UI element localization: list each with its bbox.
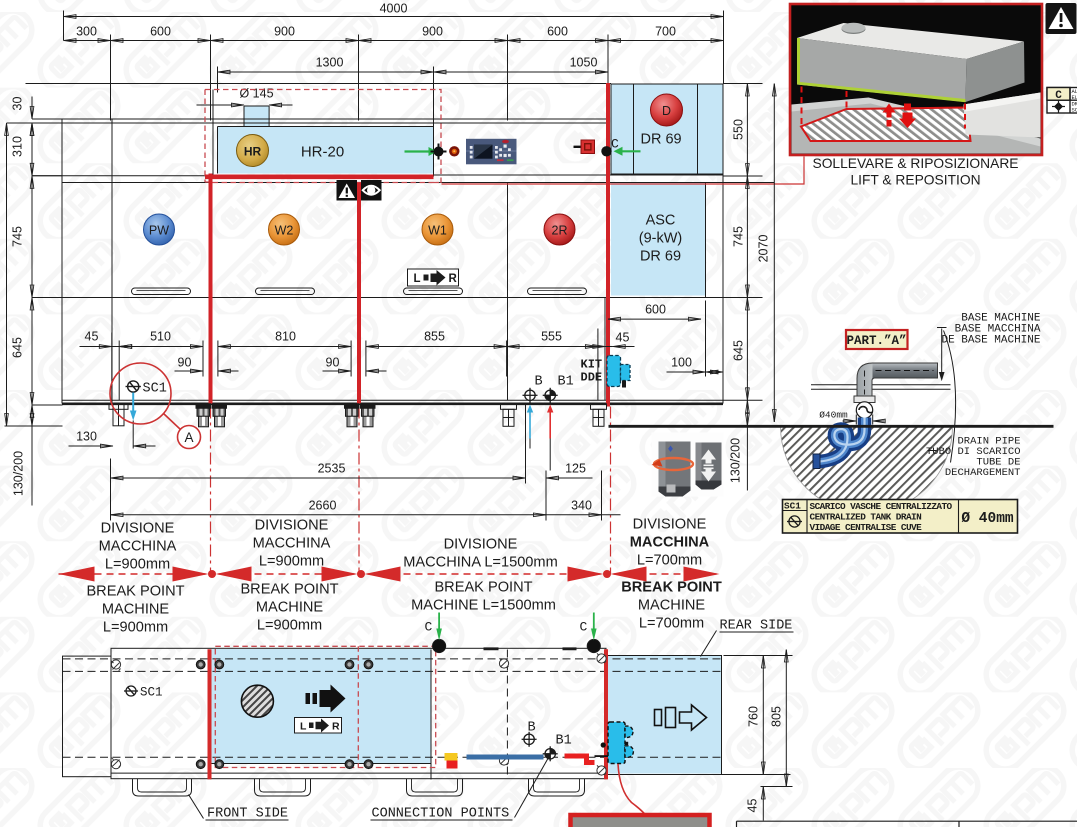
svg-text:760: 760 <box>747 706 761 727</box>
svg-text:MACCHINA: MACCHINA <box>253 536 331 552</box>
svg-text:L=700mm: L=700mm <box>639 616 704 632</box>
svg-text:2535: 2535 <box>318 462 346 476</box>
svg-text:805: 805 <box>770 706 784 727</box>
svg-text:125: 125 <box>565 462 586 476</box>
svg-text:DIVISIONE: DIVISIONE <box>255 518 329 534</box>
svg-text:600: 600 <box>645 303 666 317</box>
svg-text:MACCHINA: MACCHINA <box>99 539 177 555</box>
svg-text:L=900mm: L=900mm <box>103 620 168 636</box>
svg-text:Ø40mm: Ø40mm <box>819 410 848 421</box>
svg-text:L=900mm: L=900mm <box>259 554 324 570</box>
svg-text:DIVISIONE: DIVISIONE <box>633 517 707 533</box>
svg-text:R: R <box>332 721 340 733</box>
svg-text:BREAK POINT: BREAK POINT <box>86 584 184 600</box>
svg-text:DR 69: DR 69 <box>641 132 682 148</box>
svg-text:ASC: ASC <box>646 213 676 229</box>
svg-text:SCA: SCA <box>1072 107 1077 114</box>
svg-text:B: B <box>535 375 543 390</box>
svg-text:HR-20: HR-20 <box>301 144 344 161</box>
svg-text:L: L <box>414 273 421 285</box>
svg-text:W1: W1 <box>428 224 447 238</box>
svg-text:310: 310 <box>11 136 25 157</box>
svg-text:SC1: SC1 <box>784 501 801 512</box>
svg-text:W2: W2 <box>275 224 294 238</box>
svg-text:745: 745 <box>732 226 746 247</box>
svg-text:45: 45 <box>85 330 99 344</box>
svg-text:MACHINE L=1500mm: MACHINE L=1500mm <box>411 598 556 614</box>
svg-text:130/200: 130/200 <box>729 438 743 483</box>
svg-text:340: 340 <box>571 499 592 513</box>
svg-text:LIFT & REPOSITION: LIFT & REPOSITION <box>850 173 980 188</box>
svg-text:DE BASE MACHINE: DE BASE MACHINE <box>941 335 1040 347</box>
svg-text:555: 555 <box>541 330 562 344</box>
svg-text:90: 90 <box>326 356 340 370</box>
svg-text:600: 600 <box>150 25 171 39</box>
svg-text:Ø 40mm: Ø 40mm <box>961 511 1014 527</box>
svg-text:MACCHINA L=1500mm: MACCHINA L=1500mm <box>403 555 558 571</box>
svg-text:30: 30 <box>11 97 25 111</box>
svg-text:90: 90 <box>178 356 192 370</box>
svg-text:MACCHINA: MACCHINA <box>630 535 710 551</box>
svg-text:L=900mm: L=900mm <box>257 618 322 634</box>
svg-text:DIVISIONE: DIVISIONE <box>444 537 518 553</box>
svg-text:REAR SIDE: REAR SIDE <box>720 619 793 634</box>
svg-text:HR: HR <box>244 145 262 159</box>
svg-text:CENTRALIZED TANK DRAIN: CENTRALIZED TANK DRAIN <box>810 512 923 523</box>
svg-text:VIDAGE CENTRALISE CUVE: VIDAGE CENTRALISE CUVE <box>810 522 923 533</box>
svg-text:130: 130 <box>76 430 97 444</box>
svg-text:BREAK POINT: BREAK POINT <box>434 580 532 596</box>
svg-text:DIVISIONE: DIVISIONE <box>101 521 175 537</box>
svg-text:SC1: SC1 <box>143 382 167 397</box>
svg-text:100: 100 <box>671 356 692 370</box>
svg-text:DECHARGEMENT: DECHARGEMENT <box>945 467 1021 479</box>
svg-text:C: C <box>580 620 588 635</box>
svg-text:745: 745 <box>11 226 25 247</box>
svg-text:R: R <box>449 273 458 285</box>
svg-text:C: C <box>425 620 433 635</box>
svg-text:300: 300 <box>76 25 97 39</box>
svg-text:810: 810 <box>275 330 296 344</box>
svg-text:SC1: SC1 <box>140 686 163 700</box>
svg-text:A: A <box>184 430 193 445</box>
svg-text:1300: 1300 <box>316 56 344 70</box>
svg-text:MACHINE: MACHINE <box>102 602 170 618</box>
svg-text:2R: 2R <box>552 224 568 238</box>
svg-text:Ø 145: Ø 145 <box>239 87 273 101</box>
svg-text:B1: B1 <box>558 375 574 390</box>
svg-text:BREAK POINT: BREAK POINT <box>240 582 338 598</box>
svg-text:900: 900 <box>422 25 443 39</box>
svg-text:700: 700 <box>655 25 676 39</box>
svg-text:645: 645 <box>732 340 746 361</box>
svg-text:1050: 1050 <box>570 56 598 70</box>
svg-text:(9-kW): (9-kW) <box>639 231 683 247</box>
svg-text:CONNECTION POINTS: CONNECTION POINTS <box>372 807 510 822</box>
svg-text:2660: 2660 <box>309 499 337 513</box>
svg-text:L=900mm: L=900mm <box>105 557 170 573</box>
svg-text:130/200: 130/200 <box>12 451 26 496</box>
svg-text:SOLLEVARE & RIPOSIZIONARE: SOLLEVARE & RIPOSIZIONARE <box>813 156 1019 171</box>
svg-text:FRONT SIDE: FRONT SIDE <box>207 807 288 822</box>
svg-text:BREAK POINT: BREAK POINT <box>621 580 722 596</box>
svg-text:B1: B1 <box>556 734 572 749</box>
svg-text:510: 510 <box>150 330 171 344</box>
svg-text:DR 69: DR 69 <box>640 249 681 265</box>
svg-text:L=700mm: L=700mm <box>637 553 702 569</box>
svg-text:KIT: KIT <box>581 358 603 372</box>
svg-text:L: L <box>300 721 307 733</box>
svg-text:D: D <box>662 104 671 118</box>
svg-text:1880: 1880 <box>0 251 3 279</box>
svg-text:2070: 2070 <box>757 235 771 263</box>
svg-text:855: 855 <box>424 330 445 344</box>
svg-text:550: 550 <box>732 119 746 140</box>
svg-text:45: 45 <box>616 331 630 345</box>
svg-text:PART.”A”: PART.”A” <box>846 334 906 348</box>
svg-text:DDE: DDE <box>581 371 603 385</box>
svg-text:SCARICO VASCHE CENTRALIZZATO: SCARICO VASCHE CENTRALIZZATO <box>810 501 953 512</box>
svg-text:C: C <box>1055 90 1062 102</box>
svg-text:MACHINE: MACHINE <box>256 600 324 616</box>
svg-text:900: 900 <box>274 25 295 39</box>
svg-text:45: 45 <box>746 799 760 813</box>
svg-text:PW: PW <box>149 224 169 238</box>
svg-text:600: 600 <box>547 25 568 39</box>
svg-text:645: 645 <box>11 337 25 358</box>
svg-text:4000: 4000 <box>380 2 408 16</box>
svg-text:MACHINE: MACHINE <box>638 598 706 614</box>
